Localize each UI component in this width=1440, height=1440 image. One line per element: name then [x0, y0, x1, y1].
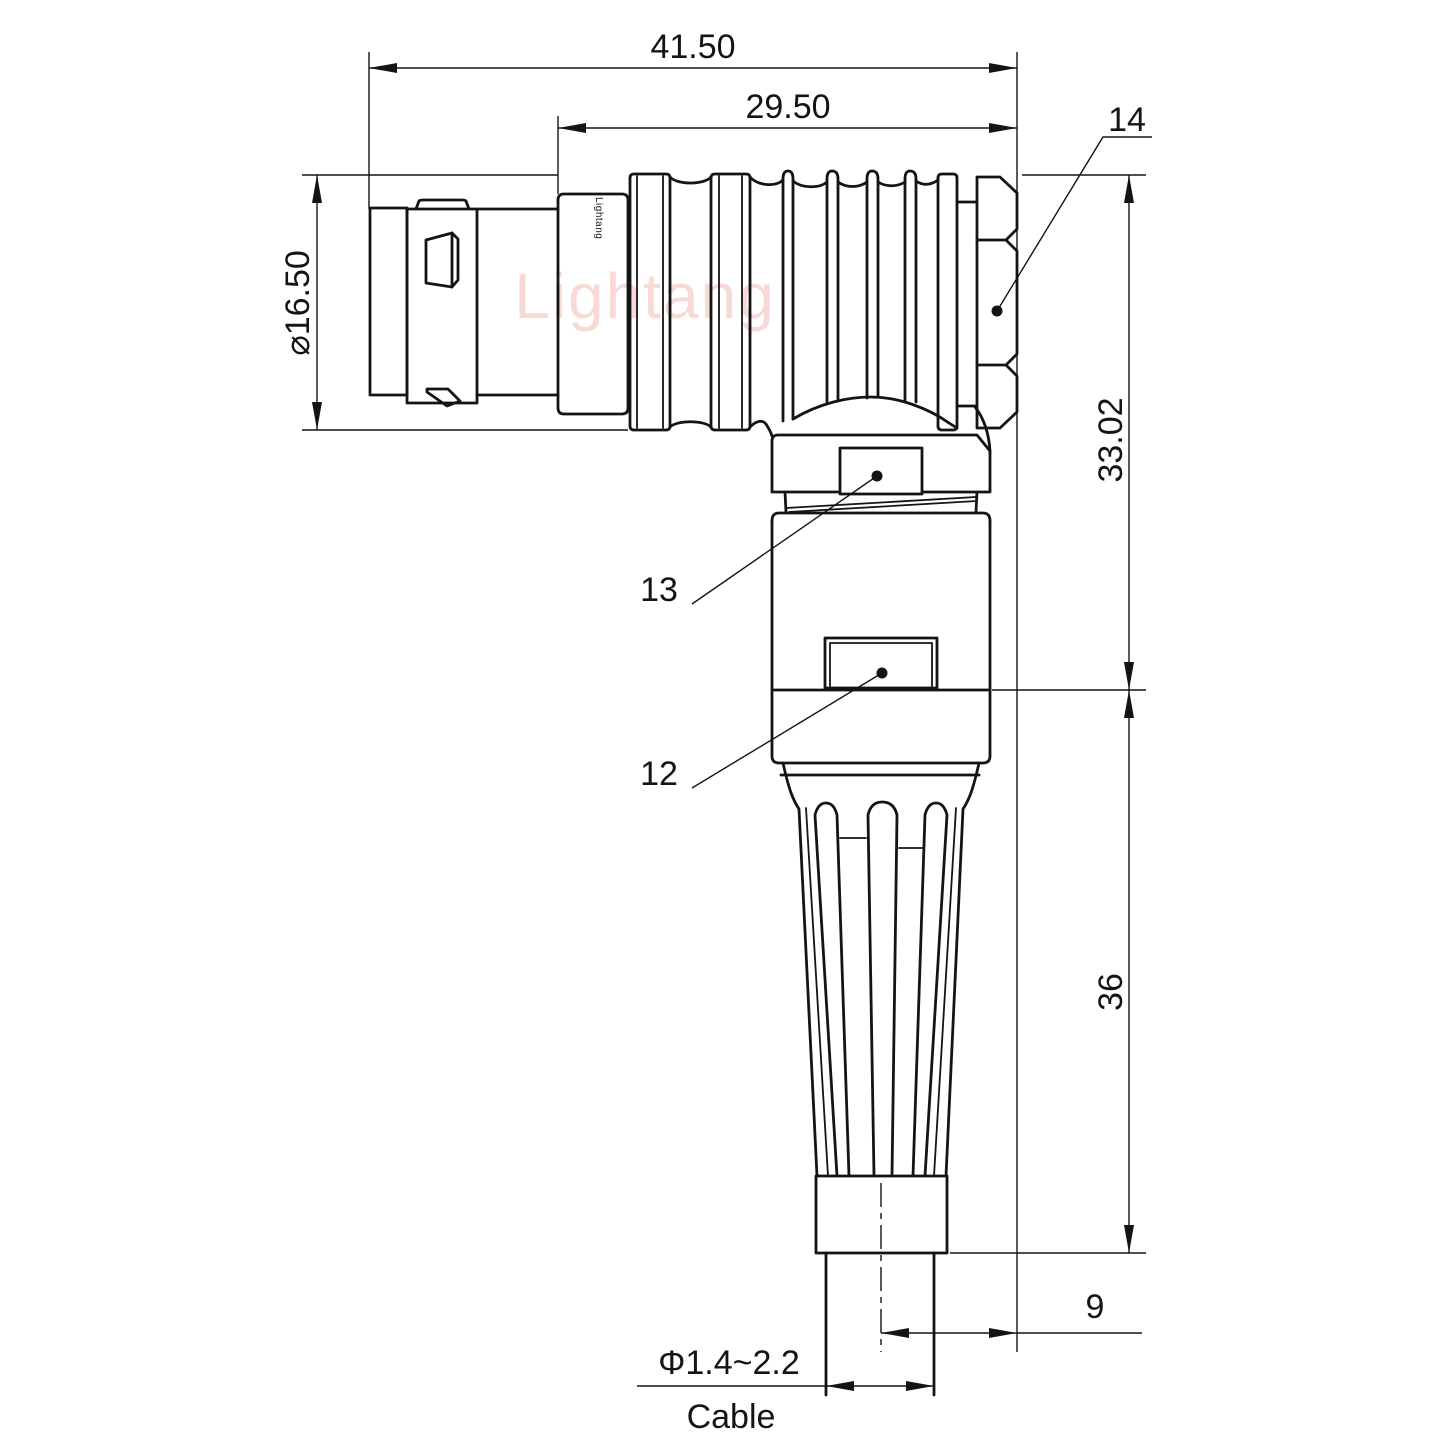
dim-upper-height: 33.02: [1092, 397, 1130, 482]
elbow-body: [772, 435, 990, 763]
boot-edge-left: [783, 763, 817, 1176]
dim-cable-diameter: Φ1.4~2.2: [658, 1344, 800, 1382]
strain-relief-boot: [781, 763, 979, 1395]
dim-overall-length: 41.50: [650, 28, 735, 66]
housing-top: [772, 513, 990, 521]
dim-lower-height: 36: [1092, 973, 1130, 1011]
dim-rear-length: 29.50: [745, 88, 830, 126]
watermark-text: Lightang: [514, 260, 776, 332]
rib-3: [867, 171, 878, 398]
boot-rib-2: [868, 802, 897, 1176]
washer: [957, 202, 977, 406]
part-label-backnut: 14: [1108, 101, 1146, 139]
boot-rib-1: [815, 803, 849, 1176]
boot-edge-inner: [806, 808, 956, 1176]
shoulder-left: [750, 421, 772, 436]
housing-lower: [772, 690, 990, 763]
part-label-coupling-detent: 13: [640, 571, 678, 609]
rib-2: [827, 171, 838, 403]
detent-upper: [840, 448, 922, 494]
boot-webs: [840, 838, 922, 848]
grip-ring-3: [938, 174, 957, 430]
dim-plug-diameter: ⌀16.50: [279, 250, 317, 356]
thread-lines: [786, 497, 977, 512]
rib-1: [783, 171, 793, 421]
leader-dot-housing-detent: [877, 668, 888, 679]
front-shell: [370, 208, 407, 395]
boot-rib-3: [913, 803, 947, 1176]
boot-edge-right: [946, 763, 979, 1176]
dimension-lines: [302, 52, 1146, 1386]
rib-4: [905, 171, 916, 402]
technical-drawing: Lightang: [0, 0, 1440, 1440]
detent-lower: [825, 638, 937, 688]
ring-valley-2-top: [750, 177, 783, 185]
cable-lines: [826, 1253, 934, 1395]
leader-dot-backnut: [992, 306, 1003, 317]
leader-dot-coupling-detent: [872, 471, 883, 482]
brand-engraving: Lightang: [593, 197, 604, 239]
latch-window: [426, 233, 452, 287]
hex-nut: [977, 177, 1017, 428]
latch-sleeve: [407, 209, 477, 403]
drawing-canvas: Lightang: [0, 0, 1440, 1440]
dim-cable-offset: 9: [1086, 1288, 1105, 1326]
part-label-housing-detent: 12: [640, 755, 678, 793]
shoulder-arch: [793, 397, 957, 428]
cable-label: Cable: [687, 1398, 776, 1436]
